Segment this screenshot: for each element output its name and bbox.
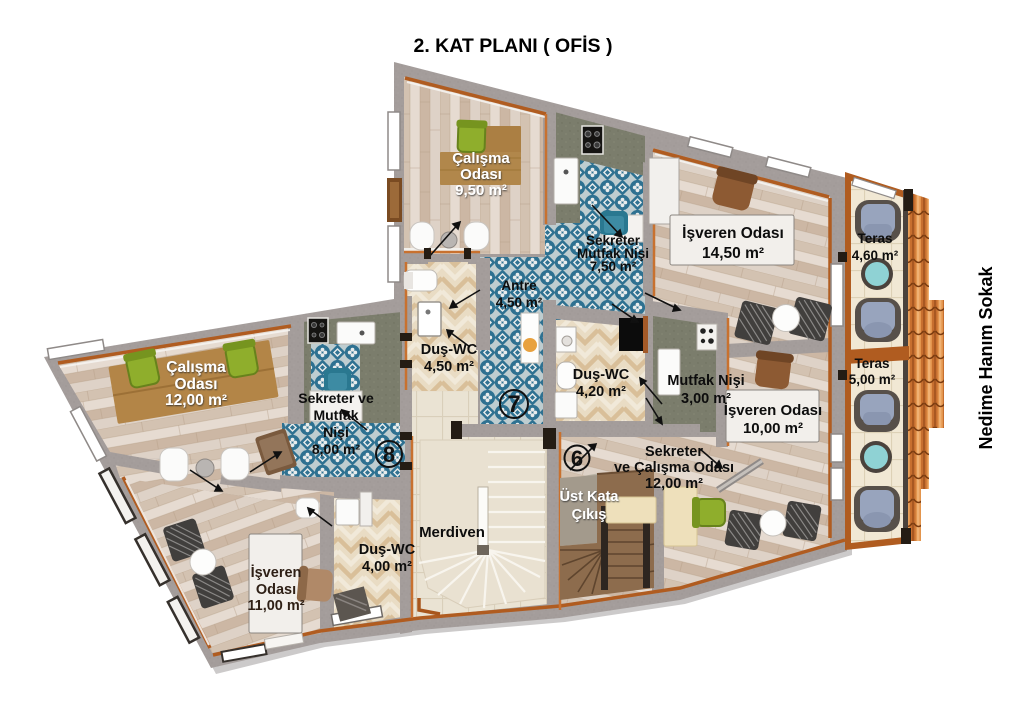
svg-text:Mutfak Nişi: Mutfak Nişi [667,373,744,389]
svg-text:8: 8 [383,442,395,467]
svg-text:2. KAT PLANI ( OFİS ): 2. KAT PLANI ( OFİS ) [414,34,613,57]
svg-text:12,00 m²: 12,00 m² [645,476,703,492]
svg-text:Teras: Teras [857,231,892,246]
svg-text:7,50 m²: 7,50 m² [590,259,637,274]
svg-text:Çıkış: Çıkış [572,507,607,523]
svg-text:Nişi: Nişi [323,424,349,440]
svg-text:7: 7 [507,391,520,418]
svg-text:Çalışma: Çalışma [452,150,510,167]
svg-text:ve Çalışma Odası: ve Çalışma Odası [614,460,734,476]
svg-text:4,20 m²: 4,20 m² [576,384,626,400]
svg-text:Odası: Odası [256,582,296,598]
svg-text:Sekreter ve: Sekreter ve [298,390,374,406]
svg-text:10,00 m²: 10,00 m² [743,420,803,437]
svg-text:4,00 m²: 4,00 m² [362,559,412,575]
svg-text:İşveren Odası: İşveren Odası [682,225,784,242]
svg-text:Üst Kata: Üst Kata [560,488,620,505]
svg-text:4,60 m²: 4,60 m² [852,248,899,263]
svg-text:Odası: Odası [174,376,217,393]
svg-text:Çalışma: Çalışma [166,359,226,376]
svg-text:14,50 m²: 14,50 m² [702,245,764,262]
svg-text:Sekreter: Sekreter [645,444,703,460]
svg-text:Teras: Teras [854,356,889,371]
svg-text:4,50 m²: 4,50 m² [424,359,474,375]
svg-text:İşveren Odası: İşveren Odası [724,402,822,419]
svg-text:Odası: Odası [460,166,502,183]
svg-text:İşveren: İşveren [251,564,302,581]
svg-text:Duş-WC: Duş-WC [359,542,416,558]
svg-text:8,00 m²: 8,00 m² [312,441,361,457]
svg-text:Merdiven: Merdiven [419,524,485,541]
svg-text:Duş-WC: Duş-WC [421,342,478,358]
svg-text:5,00 m²: 5,00 m² [849,372,896,387]
svg-text:6: 6 [571,446,583,471]
svg-text:11,00 m²: 11,00 m² [247,598,304,614]
svg-text:9,50 m²: 9,50 m² [455,182,507,199]
svg-text:Nedime Hanım Sokak: Nedime Hanım Sokak [976,265,996,449]
svg-text:Antre: Antre [501,278,537,293]
svg-text:Duş-WC: Duş-WC [573,367,630,383]
svg-text:Mutfak: Mutfak [313,407,358,423]
svg-text:12,00 m²: 12,00 m² [165,392,227,409]
svg-text:4,50 m²: 4,50 m² [496,295,543,310]
